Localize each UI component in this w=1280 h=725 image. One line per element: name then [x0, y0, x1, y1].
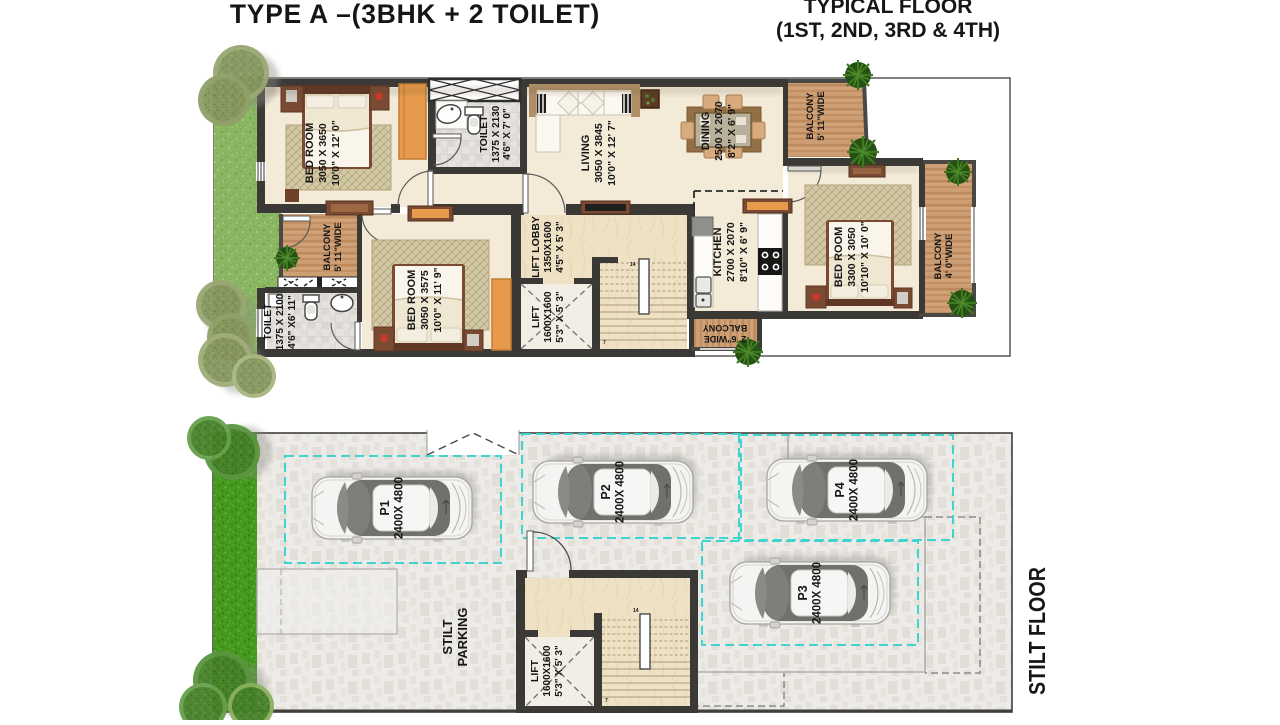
svg-text:5' 11"WIDE: 5' 11"WIDE — [333, 222, 344, 272]
svg-text:4'6" X6' 11": 4'6" X6' 11" — [287, 295, 298, 349]
svg-text:LIFT: LIFT — [529, 659, 541, 682]
svg-text:14: 14 — [630, 262, 636, 268]
svg-text:2' 6"WIDE: 2' 6"WIDE — [704, 334, 746, 344]
svg-text:STILT: STILT — [440, 619, 455, 654]
svg-text:BALCONY: BALCONY — [933, 232, 944, 280]
svg-text:KITCHEN: KITCHEN — [712, 228, 724, 277]
svg-text:P4: P4 — [833, 482, 847, 497]
svg-text:5'3" X 5' 3": 5'3" X 5' 3" — [554, 645, 565, 697]
svg-text:BALCONY: BALCONY — [805, 92, 816, 140]
svg-text:10'0" X 11' 9": 10'0" X 11' 9" — [432, 267, 444, 332]
svg-text:1350X1600: 1350X1600 — [543, 221, 554, 273]
svg-text:BALCONY: BALCONY — [703, 323, 748, 333]
svg-text:BED ROOM: BED ROOM — [406, 270, 418, 331]
svg-text:1375 X 2100: 1375 X 2100 — [275, 293, 286, 350]
svg-text:5' 11"WIDE: 5' 11"WIDE — [816, 91, 827, 141]
svg-text:(1ST, 2ND, 3RD & 4TH): (1ST, 2ND, 3RD & 4TH) — [776, 19, 1000, 42]
svg-text:8'2" X 6' 9": 8'2" X 6' 9" — [726, 104, 738, 158]
svg-text:2400X 4800: 2400X 4800 — [849, 459, 861, 521]
svg-text:5'3" X 5' 3": 5'3" X 5' 3" — [555, 291, 566, 343]
svg-text:TOILET: TOILET — [262, 303, 274, 341]
svg-text:2400X 4800: 2400X 4800 — [394, 477, 406, 539]
svg-text:TOILET: TOILET — [478, 115, 490, 153]
svg-text:BED ROOM: BED ROOM — [833, 227, 845, 288]
svg-text:1375 X 2130: 1375 X 2130 — [491, 105, 502, 162]
svg-text:3050 X 3650: 3050 X 3650 — [317, 123, 329, 183]
svg-text:TYPICAL FLOOR: TYPICAL FLOOR — [804, 0, 973, 18]
svg-text:2400X 4800: 2400X 4800 — [615, 461, 627, 523]
svg-text:7: 7 — [605, 698, 608, 704]
svg-text:P2: P2 — [599, 484, 613, 499]
svg-text:10'0" X 12' 7": 10'0" X 12' 7" — [606, 120, 618, 186]
svg-text:TYPE A –(3BHK + 2 TOILET): TYPE A –(3BHK + 2 TOILET) — [230, 0, 600, 29]
svg-text:1600X1600: 1600X1600 — [542, 645, 553, 697]
svg-text:4'6" X 7' 0": 4'6" X 7' 0" — [502, 108, 513, 160]
svg-text:2500 X 2070: 2500 X 2070 — [713, 101, 725, 161]
svg-text:14: 14 — [633, 608, 639, 614]
svg-text:P3: P3 — [796, 585, 810, 600]
svg-text:P1: P1 — [378, 500, 392, 515]
svg-text:10'10" X 10' 0": 10'10" X 10' 0" — [859, 221, 871, 293]
svg-text:4' 0"WIDE: 4' 0"WIDE — [944, 234, 955, 279]
svg-text:8'10" X 6' 9": 8'10" X 6' 9" — [738, 222, 750, 282]
svg-text:LIFT LOBBY: LIFT LOBBY — [530, 216, 542, 278]
svg-text:DINING: DINING — [700, 112, 712, 151]
svg-text:STILT FLOOR: STILT FLOOR — [1024, 567, 1050, 695]
svg-text:BED ROOM: BED ROOM — [304, 123, 316, 184]
svg-text:3300 X 3050: 3300 X 3050 — [846, 227, 858, 287]
svg-text:1600X1600: 1600X1600 — [543, 291, 554, 343]
svg-text:2700 X 2070: 2700 X 2070 — [725, 222, 737, 282]
svg-text:4'5" X 5' 3": 4'5" X 5' 3" — [555, 221, 566, 273]
svg-text:2400X 4800: 2400X 4800 — [812, 562, 824, 624]
svg-text:10'0" X 12' 0": 10'0" X 12' 0" — [330, 120, 342, 186]
svg-text:LIFT: LIFT — [530, 305, 542, 328]
svg-text:BALCONY: BALCONY — [322, 223, 333, 271]
svg-text:7: 7 — [603, 340, 606, 346]
svg-text:3050 X 3575: 3050 X 3575 — [419, 270, 431, 330]
svg-text:LIVING: LIVING — [580, 135, 592, 172]
svg-text:PARKING: PARKING — [455, 608, 470, 667]
svg-text:3050 X 3845: 3050 X 3845 — [593, 123, 605, 183]
